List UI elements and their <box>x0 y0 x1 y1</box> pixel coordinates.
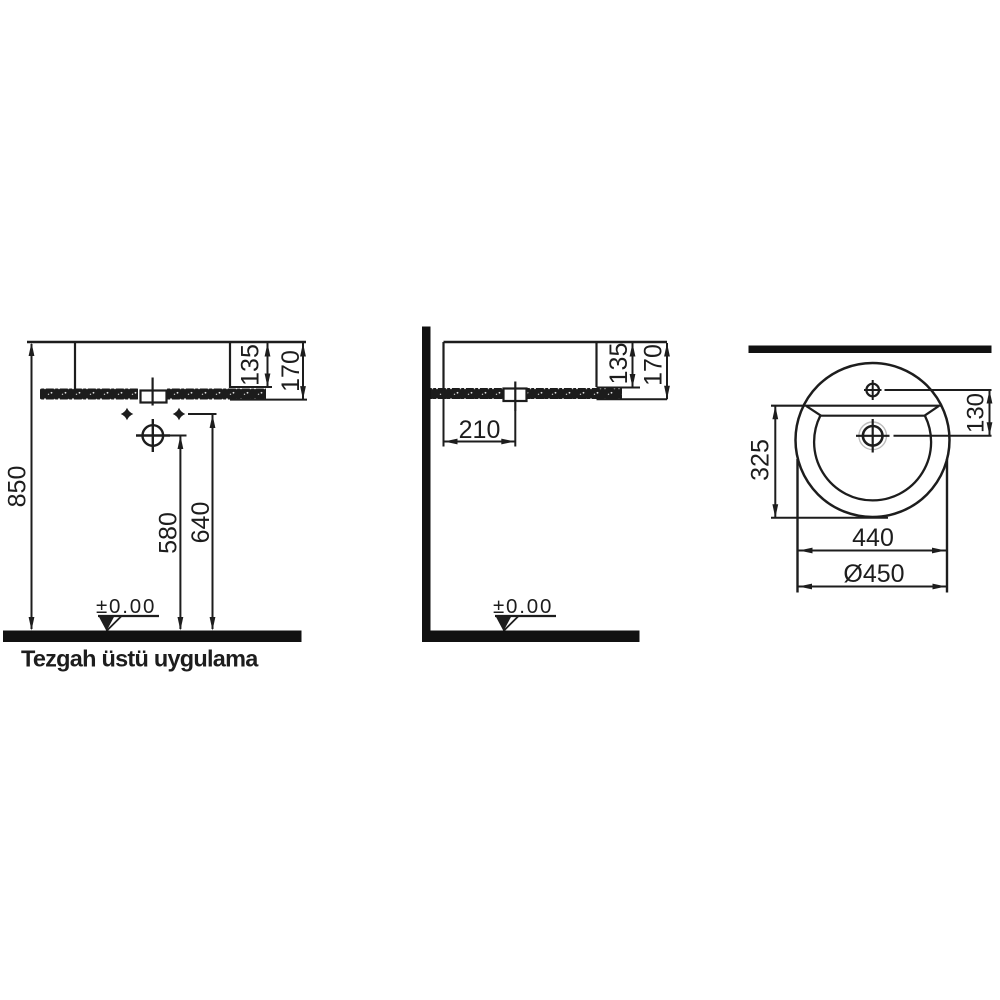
svg-text:170: 170 <box>277 350 305 392</box>
svg-text:640: 640 <box>187 502 215 544</box>
svg-text:135: 135 <box>237 344 265 386</box>
svg-text:440: 440 <box>852 524 894 552</box>
svg-text:850: 850 <box>4 466 32 508</box>
svg-text:580: 580 <box>155 512 183 554</box>
svg-text:210: 210 <box>459 416 501 444</box>
svg-text:325: 325 <box>746 439 774 481</box>
svg-text:Tezgah üstü uygulama: Tezgah üstü uygulama <box>21 646 259 672</box>
svg-text:130: 130 <box>963 393 990 433</box>
svg-text:170: 170 <box>640 344 668 386</box>
svg-text:±0.00: ±0.00 <box>96 595 156 618</box>
svg-text:Ø450: Ø450 <box>843 560 904 588</box>
svg-text:±0.00: ±0.00 <box>493 595 553 618</box>
svg-text:135: 135 <box>605 343 633 385</box>
